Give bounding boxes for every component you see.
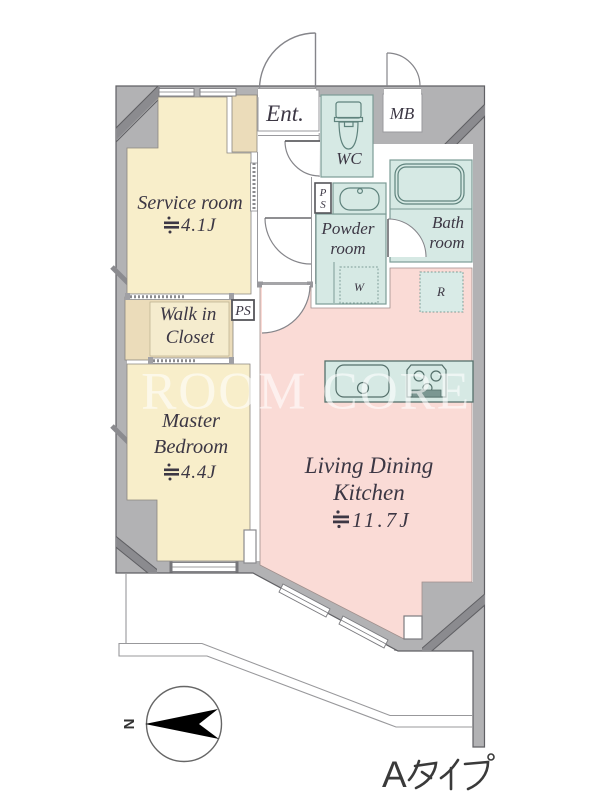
svg-text:WC: WC: [336, 149, 362, 168]
svg-text:4.1J: 4.1J: [181, 215, 217, 236]
svg-text:PS: PS: [234, 304, 251, 319]
svg-text:4.4J: 4.4J: [181, 462, 217, 483]
svg-text:Kitchen: Kitchen: [332, 480, 405, 505]
svg-text:Bath: Bath: [432, 213, 464, 232]
svg-text:W: W: [354, 280, 365, 294]
svg-text:Bedroom: Bedroom: [154, 436, 228, 458]
svg-text:MB: MB: [389, 104, 415, 123]
svg-text:S: S: [320, 199, 326, 211]
svg-text:Ent.: Ent.: [265, 101, 304, 126]
svg-text:Living Dining: Living Dining: [304, 453, 433, 478]
svg-text:A: A: [382, 754, 407, 795]
svg-text:room: room: [429, 233, 464, 252]
svg-text:P: P: [319, 187, 327, 199]
svg-text:room: room: [330, 239, 365, 258]
svg-text:Service room: Service room: [137, 192, 242, 214]
svg-text:Closet: Closet: [166, 327, 215, 348]
svg-text:11.7J: 11.7J: [352, 508, 412, 532]
svg-text:N: N: [121, 719, 138, 730]
svg-text:Powder: Powder: [321, 219, 375, 238]
svg-text:R: R: [436, 284, 445, 299]
svg-text:Walk in: Walk in: [160, 304, 217, 325]
svg-text:ROOM CORE: ROOM CORE: [141, 363, 471, 421]
